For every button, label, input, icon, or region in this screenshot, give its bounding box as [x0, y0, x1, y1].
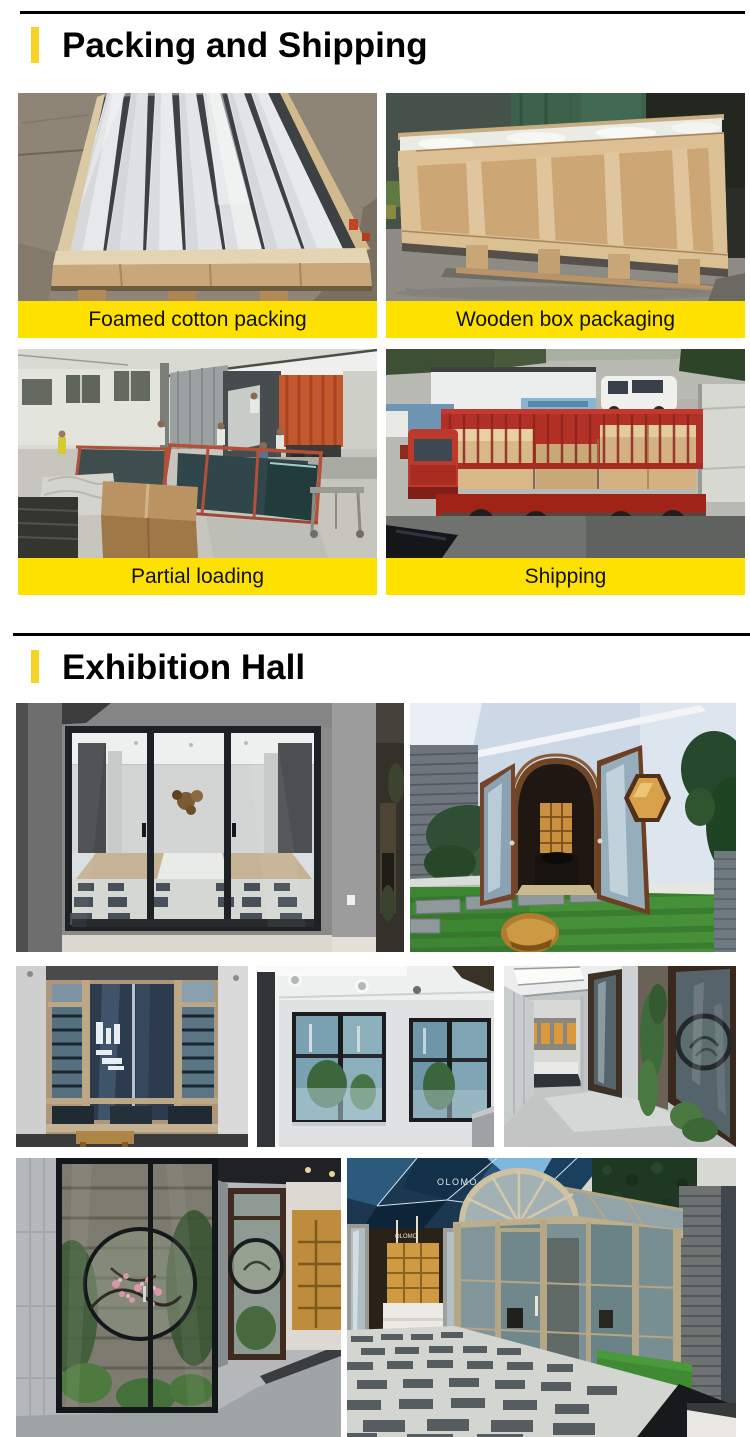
- svg-text:OLOMO: OLOMO: [437, 1177, 478, 1187]
- svg-text:OLOMO: OLOMO: [395, 1234, 418, 1240]
